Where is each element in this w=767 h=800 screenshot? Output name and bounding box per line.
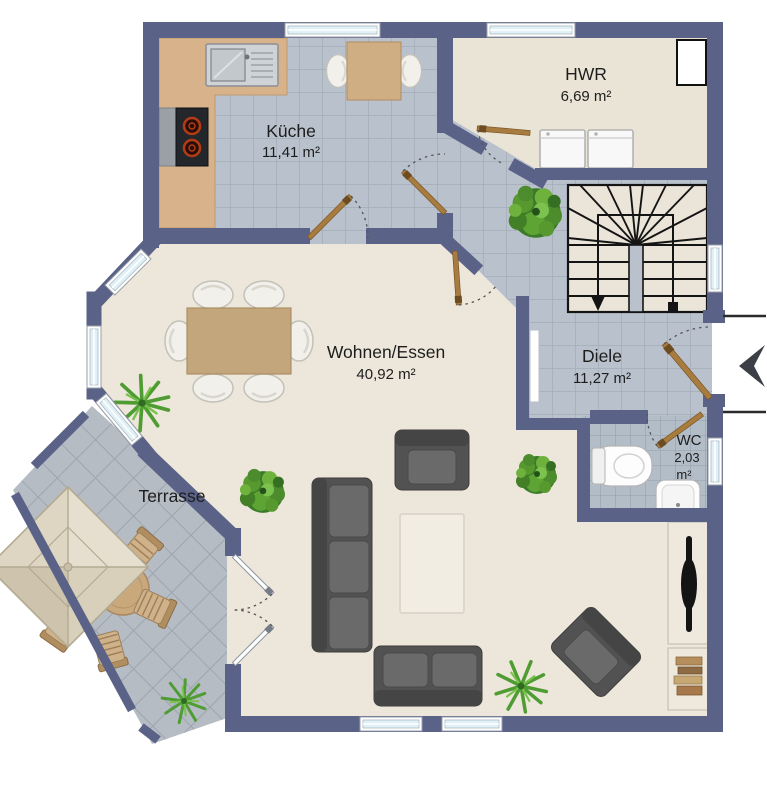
coffee-table xyxy=(400,514,464,613)
dining-chair xyxy=(244,281,284,309)
stair-start-post xyxy=(668,302,678,312)
kitchen-chair xyxy=(399,55,422,88)
dining-chair xyxy=(244,374,284,402)
room-label-wc: WC xyxy=(677,432,702,449)
bay-window xyxy=(87,326,101,388)
room-label-kueche: Küche xyxy=(266,121,316,141)
room-area-diele: 11,27 m² xyxy=(573,370,631,387)
window xyxy=(360,717,422,731)
room-label-hwr: HWR xyxy=(565,64,607,84)
room-area-kueche: 11,41 m² xyxy=(262,144,320,161)
window xyxy=(487,23,575,37)
sofa-three-seat xyxy=(312,478,372,652)
window xyxy=(708,245,722,292)
window xyxy=(285,23,380,37)
window xyxy=(442,717,502,731)
sofa-two-seat xyxy=(374,646,482,706)
room-label-diele: Diele xyxy=(582,346,622,366)
staircase xyxy=(568,185,707,312)
room-label-wohnen: Wohnen/Essen xyxy=(327,342,445,362)
room-label-terrasse: Terrasse xyxy=(138,486,205,506)
floor-plan-page: Küche 11,41 m² HWR 6,69 m² Wohnen/Essen … xyxy=(0,0,767,800)
kitchen-table xyxy=(347,42,401,100)
dining-table xyxy=(187,308,291,374)
entrance-arrow-icon xyxy=(739,345,765,387)
window xyxy=(708,438,722,485)
bookshelf xyxy=(668,648,710,710)
sink xyxy=(206,44,278,86)
room-area-wc-value: 2,03 xyxy=(674,450,699,465)
kitchen-chair xyxy=(327,55,350,88)
tv-lowboard xyxy=(668,522,710,644)
stove xyxy=(159,108,208,166)
dining-chair xyxy=(193,281,233,309)
dryer xyxy=(588,130,633,168)
room-area-wc-unit: m² xyxy=(676,467,692,482)
dining-chair xyxy=(193,374,233,402)
room-area-hwr: 6,69 m² xyxy=(561,88,612,105)
room-area-wohnen: 40,92 m² xyxy=(356,366,415,383)
washer xyxy=(540,130,585,168)
armchair xyxy=(395,430,469,490)
entrance-marker xyxy=(723,316,766,412)
toilet xyxy=(592,446,652,486)
hall-radiator xyxy=(530,330,539,402)
chimney xyxy=(677,40,706,85)
floor-plan-drawing: Küche 11,41 m² HWR 6,69 m² Wohnen/Essen … xyxy=(0,0,767,800)
